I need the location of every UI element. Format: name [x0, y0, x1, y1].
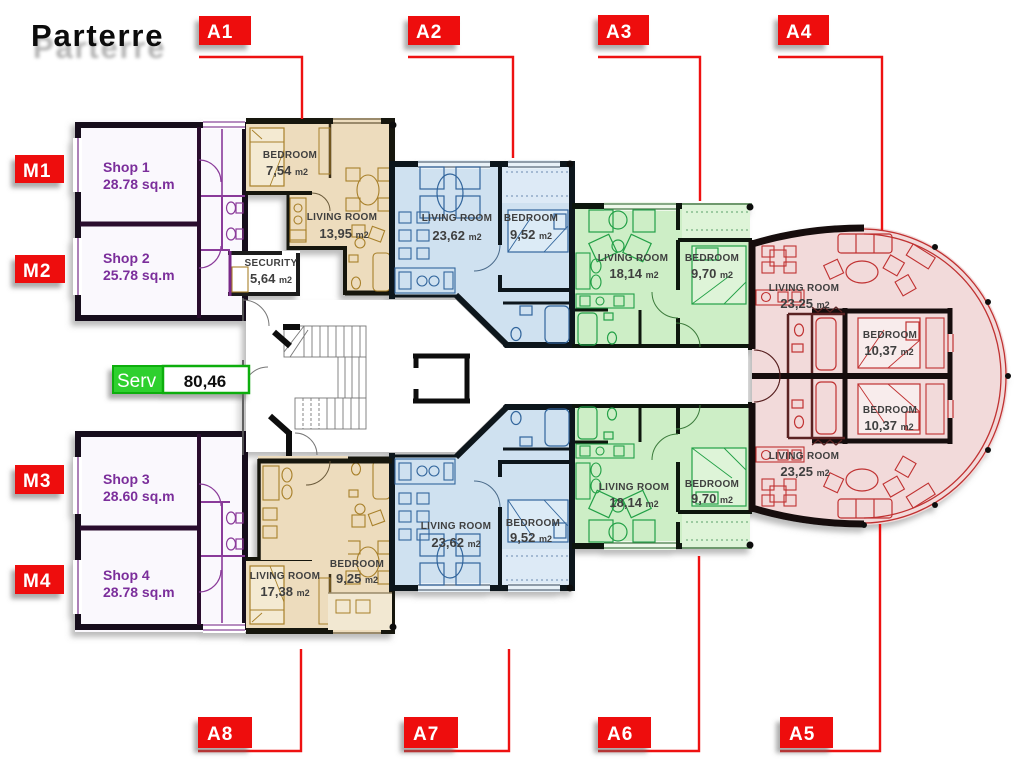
svg-text:SECURITY: SECURITY — [245, 258, 298, 269]
svg-text:28.60 sq.m: 28.60 sq.m — [103, 488, 175, 504]
svg-text:Shop 4: Shop 4 — [103, 567, 150, 583]
svg-text:Shop 3: Shop 3 — [103, 471, 150, 487]
svg-text:LIVING ROOM: LIVING ROOM — [422, 213, 493, 224]
svg-text:Parterre: Parterre — [31, 18, 164, 53]
svg-text:A6: A6 — [607, 724, 633, 745]
svg-text:M3: M3 — [23, 471, 51, 492]
svg-text:LIVING ROOM: LIVING ROOM — [307, 212, 378, 223]
svg-text:BEDROOM: BEDROOM — [685, 253, 739, 264]
svg-text:BEDROOM: BEDROOM — [263, 150, 317, 161]
svg-text:A1: A1 — [207, 22, 233, 43]
svg-text:LIVING ROOM: LIVING ROOM — [599, 482, 670, 493]
svg-text:A7: A7 — [413, 724, 439, 745]
svg-text:M2: M2 — [23, 261, 51, 282]
svg-text:Shop 2: Shop 2 — [103, 250, 150, 266]
svg-text:A8: A8 — [207, 724, 233, 745]
svg-text:LIVING ROOM: LIVING ROOM — [250, 571, 321, 582]
svg-text:28.78 sq.m: 28.78 sq.m — [103, 176, 175, 192]
svg-text:Shop 1: Shop 1 — [103, 159, 150, 175]
svg-text:BEDROOM: BEDROOM — [504, 213, 558, 224]
svg-text:A2: A2 — [416, 22, 442, 43]
svg-text:BEDROOM: BEDROOM — [330, 559, 384, 570]
svg-text:A3: A3 — [606, 22, 632, 43]
svg-text:BEDROOM: BEDROOM — [863, 405, 917, 416]
svg-text:BEDROOM: BEDROOM — [863, 330, 917, 341]
svg-text:BEDROOM: BEDROOM — [506, 518, 560, 529]
svg-text:25.78 sq.m: 25.78 sq.m — [103, 267, 175, 283]
svg-text:M1: M1 — [23, 161, 51, 182]
svg-text:M4: M4 — [23, 571, 51, 592]
svg-text:LIVING ROOM: LIVING ROOM — [769, 451, 840, 462]
svg-text:Serv: Serv — [117, 371, 157, 392]
svg-text:28.78 sq.m: 28.78 sq.m — [103, 584, 175, 600]
svg-text:LIVING ROOM: LIVING ROOM — [598, 253, 669, 264]
svg-text:BEDROOM: BEDROOM — [685, 479, 739, 490]
svg-text:LIVING ROOM: LIVING ROOM — [421, 521, 492, 532]
svg-text:80,46: 80,46 — [184, 372, 227, 391]
svg-text:A4: A4 — [786, 22, 812, 43]
svg-text:LIVING ROOM: LIVING ROOM — [769, 283, 840, 294]
svg-text:A5: A5 — [789, 724, 815, 745]
